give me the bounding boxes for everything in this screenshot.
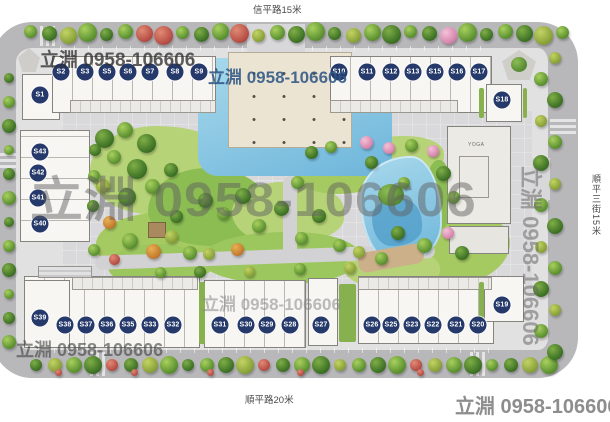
- tree-icon: [154, 26, 173, 45]
- backrooms-top-right: [330, 100, 458, 113]
- planter-strip: [199, 282, 205, 344]
- tree-icon: [360, 136, 373, 149]
- tree-icon: [404, 25, 417, 38]
- unit-badge-s21: S21: [448, 317, 465, 334]
- backrooms-bottom-right: [358, 277, 492, 290]
- tree-icon: [534, 324, 548, 338]
- tree-icon: [534, 72, 548, 86]
- tree-icon: [106, 359, 118, 371]
- tree-icon: [155, 267, 166, 278]
- tree-icon: [164, 163, 178, 177]
- tree-icon: [398, 177, 410, 189]
- tree-icon: [182, 359, 194, 371]
- unit-badge-s29: S29: [259, 317, 276, 334]
- tree-icon: [291, 176, 304, 189]
- building-unit-s27: [308, 278, 338, 346]
- building-column-left: [20, 130, 90, 242]
- tree-icon: [118, 24, 133, 39]
- tree-icon: [370, 357, 386, 373]
- tree-icon: [103, 216, 116, 229]
- tree-icon: [549, 304, 561, 316]
- tree-icon: [534, 26, 553, 45]
- tree-icon: [391, 226, 405, 240]
- tree-icon: [4, 289, 14, 299]
- tree-icon: [160, 356, 178, 374]
- unit-badge-s27: S27: [313, 317, 330, 334]
- clubhouse-room-label: YOGA: [468, 142, 484, 148]
- unit-badge-s33: S33: [142, 317, 159, 334]
- tree-icon: [365, 156, 378, 169]
- unit-badge-s22: S22: [425, 317, 442, 334]
- tree-icon: [170, 210, 183, 223]
- tree-icon: [131, 369, 138, 376]
- tree-icon: [217, 207, 230, 220]
- tree-icon: [436, 166, 451, 181]
- tree-icon: [88, 244, 100, 256]
- planter-strip: [479, 88, 484, 118]
- planter-strip: [523, 88, 527, 118]
- tree-icon: [535, 115, 547, 127]
- unit-badge-s32: S32: [165, 317, 182, 334]
- tree-icon: [136, 25, 153, 42]
- tree-icon: [270, 25, 285, 40]
- unit-badge-s40: S40: [32, 216, 49, 233]
- garden-pavilion: [148, 222, 166, 238]
- tree-icon: [118, 188, 136, 206]
- tree-icon: [183, 246, 197, 260]
- tree-icon: [42, 26, 57, 41]
- tree-icon: [428, 358, 442, 372]
- tree-icon: [137, 134, 156, 153]
- tree-icon: [252, 29, 265, 42]
- tree-icon: [244, 266, 255, 277]
- tree-icon: [4, 217, 14, 227]
- tree-icon: [295, 232, 308, 245]
- tree-icon: [305, 146, 318, 159]
- tree-icon: [218, 357, 234, 373]
- tree-icon: [548, 135, 562, 149]
- tree-icon: [535, 241, 547, 253]
- tree-icon: [3, 96, 15, 108]
- tree-icon: [447, 191, 460, 204]
- tree-icon: [458, 23, 477, 42]
- tree-icon: [288, 26, 305, 43]
- tree-icon: [427, 145, 439, 157]
- tree-icon: [84, 356, 102, 374]
- tree-icon: [334, 359, 346, 371]
- street-label-top: 信平路15米: [253, 2, 302, 16]
- tree-icon: [548, 261, 562, 275]
- tree-icon: [352, 358, 366, 372]
- tree-icon: [145, 179, 160, 194]
- tree-icon: [405, 139, 418, 152]
- unit-badge-s16: S16: [449, 64, 466, 81]
- tree-icon: [312, 209, 326, 223]
- tree-icon: [455, 246, 469, 260]
- tree-icon: [549, 52, 561, 64]
- unit-badge-s23: S23: [404, 317, 421, 334]
- tree-icon: [486, 359, 498, 371]
- unit-badge-s2: S2: [53, 64, 70, 81]
- building-row-bottom-mid: [204, 280, 306, 348]
- tree-icon: [382, 25, 401, 44]
- unit-badge-s30: S30: [238, 317, 255, 334]
- tree-icon: [294, 263, 306, 275]
- tree-icon: [2, 263, 16, 277]
- tree-icon: [276, 358, 290, 372]
- unit-badge-s37: S37: [78, 317, 95, 334]
- tree-icon: [383, 142, 395, 154]
- tree-icon: [122, 233, 138, 249]
- tree-icon: [556, 26, 569, 39]
- tree-icon: [89, 144, 101, 156]
- tree-icon: [212, 23, 229, 40]
- tree-icon: [498, 24, 513, 39]
- unit-badge-s9: S9: [191, 64, 208, 81]
- tree-icon: [417, 369, 424, 376]
- tree-icon: [464, 356, 482, 374]
- tree-icon: [24, 25, 37, 38]
- unit-badge-s31: S31: [212, 317, 229, 334]
- unit-badge-s5: S5: [99, 64, 116, 81]
- tree-icon: [3, 168, 15, 180]
- tree-icon: [333, 239, 346, 252]
- tree-icon: [440, 27, 457, 44]
- unit-badge-s41: S41: [30, 190, 47, 207]
- unit-badge-s20: S20: [470, 317, 487, 334]
- tree-icon: [66, 357, 82, 373]
- tree-icon: [235, 188, 251, 204]
- unit-badge-s11: S11: [359, 64, 376, 81]
- tree-icon: [87, 200, 99, 212]
- tree-icon: [60, 27, 77, 44]
- watermark-bottom-right: 立淵 0958-106606: [455, 390, 610, 419]
- tree-icon: [230, 24, 249, 43]
- unit-badge-s25: S25: [383, 317, 400, 334]
- backrooms-top-left: [70, 100, 216, 113]
- tree-icon: [55, 369, 62, 376]
- tree-icon: [78, 23, 97, 42]
- tree-icon: [4, 73, 14, 83]
- unit-badge-s7: S7: [142, 64, 159, 81]
- unit-badge-s6: S6: [120, 64, 137, 81]
- tree-icon: [194, 27, 209, 42]
- tree-icon: [422, 26, 437, 41]
- tree-icon: [274, 201, 289, 216]
- tree-icon: [446, 357, 462, 373]
- tree-icon: [2, 191, 16, 205]
- tree-icon: [2, 119, 16, 133]
- tree-icon: [522, 357, 538, 373]
- unit-badge-s13: S13: [405, 64, 422, 81]
- tree-icon: [533, 281, 549, 297]
- tree-icon: [534, 198, 548, 212]
- unit-badge-s8: S8: [167, 64, 184, 81]
- planter-strip: [479, 282, 484, 318]
- tree-icon: [194, 266, 206, 278]
- crosswalk-right: [550, 118, 576, 134]
- unit-badge-s26: S26: [364, 317, 381, 334]
- tree-icon: [252, 219, 266, 233]
- unit-badge-s35: S35: [120, 317, 137, 334]
- tree-icon: [203, 248, 215, 260]
- tree-icon: [236, 356, 254, 374]
- tree-icon: [96, 179, 110, 193]
- tree-icon: [198, 193, 213, 208]
- tree-icon: [364, 24, 381, 41]
- unit-badge-s42: S42: [30, 165, 47, 182]
- tree-icon: [127, 159, 147, 179]
- tree-icon: [547, 92, 563, 108]
- unit-badge-s17: S17: [471, 64, 488, 81]
- tree-icon: [146, 244, 161, 259]
- tree-icon: [388, 356, 406, 374]
- unit-badge-s1: S1: [32, 87, 49, 104]
- tree-icon: [88, 170, 100, 182]
- tree-icon: [306, 22, 325, 41]
- tree-icon: [3, 240, 15, 252]
- unit-badge-s10: S10: [331, 64, 348, 81]
- street-label-right: 順平三街15米: [590, 174, 603, 236]
- tree-icon: [4, 145, 14, 155]
- tree-icon: [297, 369, 304, 376]
- tree-icon: [417, 238, 432, 253]
- tree-icon: [2, 335, 16, 349]
- tree-icon: [100, 28, 113, 41]
- tree-icon: [165, 230, 178, 243]
- tree-icon: [516, 25, 533, 42]
- tree-icon: [547, 218, 563, 234]
- tree-icon: [346, 28, 361, 43]
- unit-badge-s28: S28: [282, 317, 299, 334]
- tree-icon: [533, 155, 549, 171]
- tree-icon: [442, 227, 454, 239]
- street-label-bottom: 順平路20米: [245, 392, 294, 406]
- tree-icon: [117, 122, 133, 138]
- unit-badge-s19: S19: [494, 297, 511, 314]
- planter-strip: [339, 284, 356, 342]
- unit-badge-s36: S36: [99, 317, 116, 334]
- unit-badge-s15: S15: [427, 64, 444, 81]
- tree-icon: [375, 252, 388, 265]
- tree-icon: [325, 141, 337, 153]
- clubhouse-core: [459, 156, 489, 198]
- unit-badge-s43: S43: [32, 144, 49, 161]
- tree-icon: [176, 26, 189, 39]
- unit-badge-s3: S3: [77, 64, 94, 81]
- tree-icon: [3, 312, 15, 324]
- unit-badge-s39: S39: [32, 310, 49, 327]
- tree-icon: [504, 358, 518, 372]
- unit-badge-s38: S38: [57, 317, 74, 334]
- tree-icon: [353, 246, 365, 258]
- tree-icon: [30, 359, 42, 371]
- tree-icon: [480, 28, 493, 41]
- tree-icon: [549, 178, 561, 190]
- site-plan-canvas: 信平路15米 順平路20米 順平三街15米 YOGA: [0, 0, 610, 422]
- tree-icon: [258, 359, 270, 371]
- tree-icon: [312, 356, 330, 374]
- pavilion-bush: [511, 57, 527, 72]
- tree-icon: [344, 262, 356, 274]
- tree-icon: [107, 150, 121, 164]
- tree-icon: [328, 27, 341, 40]
- backrooms-bottom-left: [72, 277, 198, 290]
- tree-icon: [231, 243, 244, 256]
- tree-icon: [109, 254, 120, 265]
- tree-icon: [207, 369, 214, 376]
- tree-icon: [142, 357, 158, 373]
- tree-icon: [547, 344, 563, 360]
- unit-badge-s12: S12: [383, 64, 400, 81]
- unit-badge-s18: S18: [494, 92, 511, 109]
